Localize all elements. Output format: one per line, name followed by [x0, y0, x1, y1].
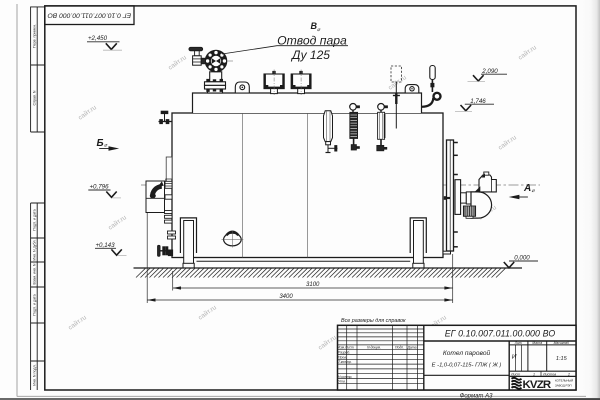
svg-text:ЗАВОД РЭП: ЗАВОД РЭП — [555, 384, 572, 388]
svg-text:2: 2 — [567, 372, 570, 376]
svg-text:Котел паровой: Котел паровой — [443, 349, 491, 357]
svg-text:Е -1,0-0,07-115- ГЛЖ ( Ж ): Е -1,0-0,07-115- ГЛЖ ( Ж ) — [432, 363, 502, 369]
svg-text:2,090: 2,090 — [481, 68, 498, 75]
svg-text:Подп. и дата: Подп. и дата — [33, 209, 37, 230]
svg-text:Ду 125: Ду 125 — [290, 48, 330, 62]
svg-text:Масса: Масса — [532, 341, 542, 345]
svg-text:1,746: 1,746 — [470, 98, 486, 105]
svg-text:Н.контр.: Н.контр. — [338, 375, 352, 379]
svg-text:1: 1 — [533, 372, 535, 376]
svg-text:0,000: 0,000 — [514, 255, 530, 262]
svg-text:Все размеры для справок: Все размеры для справок — [341, 318, 406, 324]
svg-text:ЕГ 0.10.007.011.00.000 ВО: ЕГ 0.10.007.011.00.000 ВО — [445, 329, 556, 339]
svg-text:+0,143: +0,143 — [95, 242, 115, 249]
svg-text:Подп. и дата: Подп. и дата — [33, 294, 37, 315]
svg-text:Формат А3: Формат А3 — [460, 394, 493, 400]
svg-text:Т.контр.: Т.контр. — [338, 360, 352, 364]
svg-text:1:15: 1:15 — [556, 356, 568, 362]
svg-text:Б: Б — [97, 138, 104, 149]
svg-text:Перв. примен.: Перв. примен. — [33, 24, 37, 48]
svg-text:Подп.: Подп. — [395, 346, 404, 350]
svg-text:И: И — [512, 354, 517, 361]
svg-text:+2,450: +2,450 — [88, 35, 108, 42]
svg-text:3100: 3100 — [306, 282, 320, 288]
svg-text:КОТЕЛЬНЫЙ: КОТЕЛЬНЫЙ — [555, 379, 573, 383]
svg-text:Изм.Лист: Изм.Лист — [338, 346, 354, 350]
svg-text:Разраб.: Разраб. — [338, 351, 350, 355]
svg-text:Взам. инв. N: Взам. инв. N — [33, 263, 37, 284]
svg-text:+0,796: +0,796 — [89, 184, 109, 191]
svg-text:Инв. N подл.: Инв. N подл. — [33, 364, 37, 385]
svg-text:Масштаб: Масштаб — [554, 341, 570, 345]
svg-text:Справ. N: Справ. N — [33, 90, 37, 105]
svg-text:3400: 3400 — [279, 294, 293, 300]
svg-text:Отвод пара: Отвод пара — [277, 34, 347, 48]
svg-text:ЕГ 0.10.007.011.00.000 ВО: ЕГ 0.10.007.011.00.000 ВО — [47, 12, 131, 19]
svg-text:Дата: Дата — [407, 346, 417, 350]
svg-text:Инв. N дубл.: Инв. N дубл. — [33, 240, 37, 261]
svg-text:KVZR: KVZR — [523, 379, 551, 391]
svg-text:Лист: Лист — [510, 372, 520, 376]
svg-text:А: А — [523, 183, 531, 194]
svg-text:Лит.: Лит. — [514, 341, 523, 345]
svg-text:Утв.: Утв. — [338, 380, 346, 384]
svg-text:Листов: Листов — [542, 372, 556, 376]
svg-text:Пров.: Пров. — [338, 355, 347, 359]
svg-text:N докум.: N докум. — [367, 346, 381, 350]
